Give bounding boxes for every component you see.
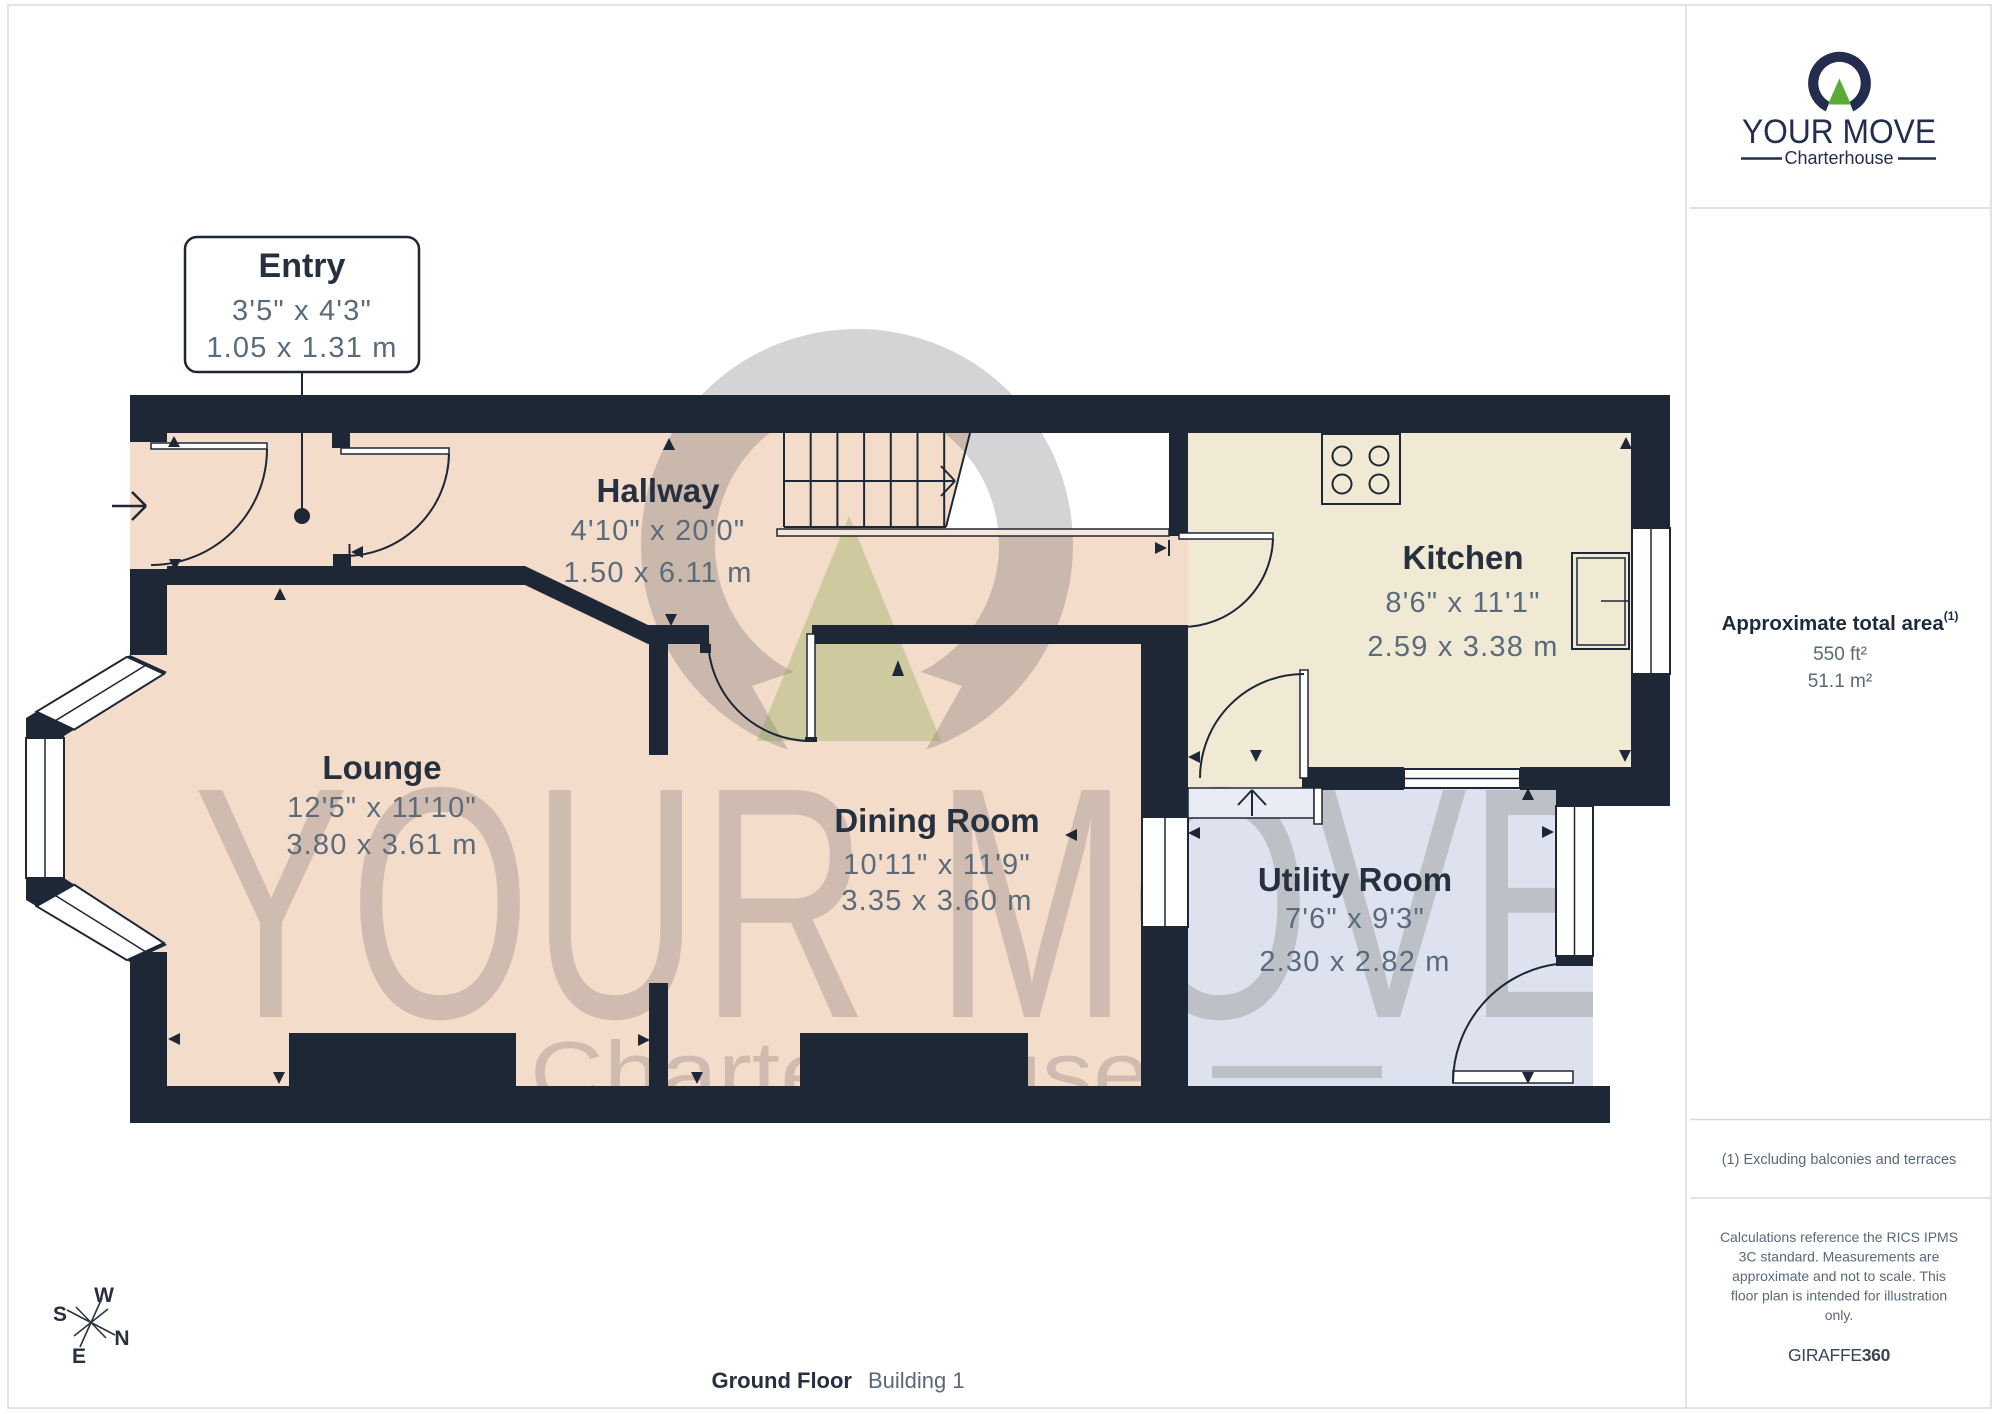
svg-text:N: N — [114, 1327, 129, 1350]
svg-text:10'11" x 11'9": 10'11" x 11'9" — [843, 849, 1031, 881]
svg-text:GIRAFFE360: GIRAFFE360 — [1788, 1345, 1891, 1365]
svg-text:2.59 x 3.38 m: 2.59 x 3.38 m — [1367, 631, 1558, 663]
svg-text:Kitchen: Kitchen — [1402, 539, 1523, 576]
svg-text:approximate and not to scale.: approximate and not to scale. This — [1732, 1268, 1946, 1284]
svg-text:only.: only. — [1825, 1307, 1854, 1323]
svg-text:1.05 x 1.31 m: 1.05 x 1.31 m — [206, 332, 397, 364]
svg-text:3C standard. Measurements are: 3C standard. Measurements are — [1739, 1249, 1940, 1265]
svg-text:floor plan is intended for ill: floor plan is intended for illustration — [1731, 1288, 1947, 1304]
svg-text:W: W — [94, 1284, 114, 1307]
svg-text:8'6" x 11'1": 8'6" x 11'1" — [1385, 587, 1540, 619]
svg-text:Dining Room: Dining Room — [834, 802, 1039, 839]
svg-text:Ground Floor: Ground Floor — [711, 1368, 852, 1393]
svg-text:3.80 x 3.61 m: 3.80 x 3.61 m — [286, 829, 477, 861]
svg-text:12'5" x 11'10": 12'5" x 11'10" — [287, 792, 477, 824]
svg-text:Calculations reference the RIC: Calculations reference the RICS IPMS — [1720, 1229, 1958, 1245]
svg-text:Hallway: Hallway — [597, 472, 721, 509]
svg-text:S: S — [53, 1303, 67, 1326]
svg-text:1.50 x 6.11 m: 1.50 x 6.11 m — [563, 557, 752, 589]
svg-text:7'6" x 9'3": 7'6" x 9'3" — [1285, 903, 1425, 935]
svg-text:Charterhouse: Charterhouse — [1784, 148, 1893, 168]
svg-text:51.1 m²: 51.1 m² — [1808, 671, 1872, 692]
svg-text:Utility Room: Utility Room — [1258, 861, 1452, 898]
svg-text:2.30 x 2.82 m: 2.30 x 2.82 m — [1259, 946, 1450, 978]
svg-text:YOUR MOVE: YOUR MOVE — [1742, 113, 1936, 151]
svg-text:3'5" x 4'3": 3'5" x 4'3" — [232, 295, 372, 327]
svg-text:E: E — [72, 1345, 86, 1368]
svg-text:3.35 x 3.60 m: 3.35 x 3.60 m — [841, 885, 1032, 917]
svg-text:Approximate total area(1): Approximate total area(1) — [1722, 609, 1959, 635]
svg-text:550 ft²: 550 ft² — [1813, 644, 1867, 665]
svg-text:4'10" x 20'0": 4'10" x 20'0" — [571, 515, 746, 547]
svg-text:Lounge: Lounge — [322, 749, 441, 786]
svg-text:Building 1: Building 1 — [868, 1368, 965, 1393]
svg-text:Entry: Entry — [259, 247, 346, 285]
svg-text:(1) Excluding balconies and te: (1) Excluding balconies and terraces — [1722, 1152, 1957, 1168]
